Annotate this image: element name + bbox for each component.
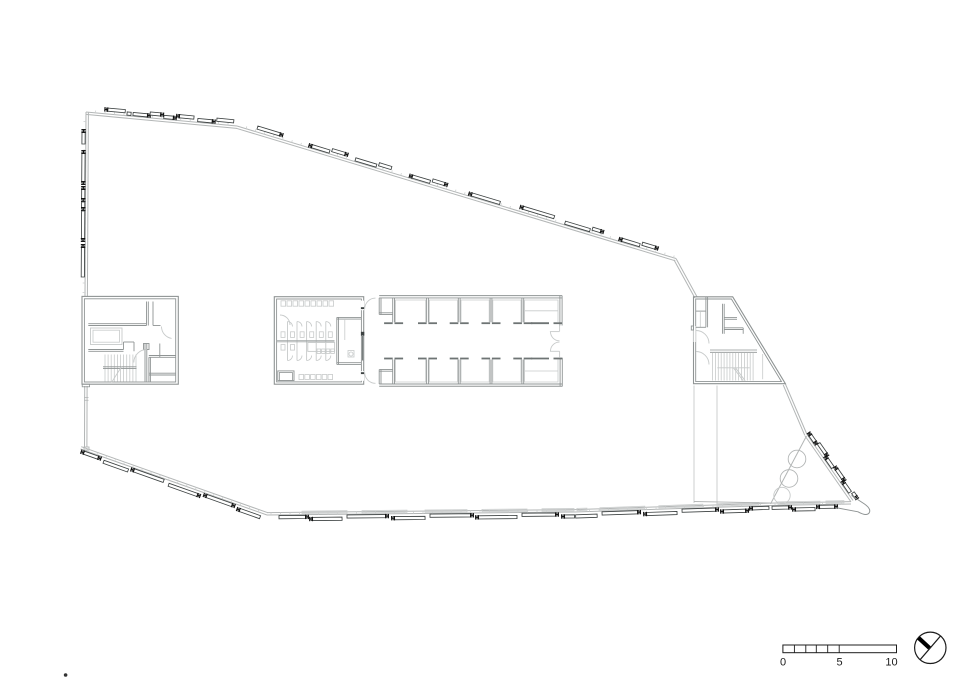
- svg-text:0: 0: [780, 657, 786, 669]
- svg-text:5: 5: [836, 657, 842, 669]
- svg-text:10: 10: [885, 657, 897, 669]
